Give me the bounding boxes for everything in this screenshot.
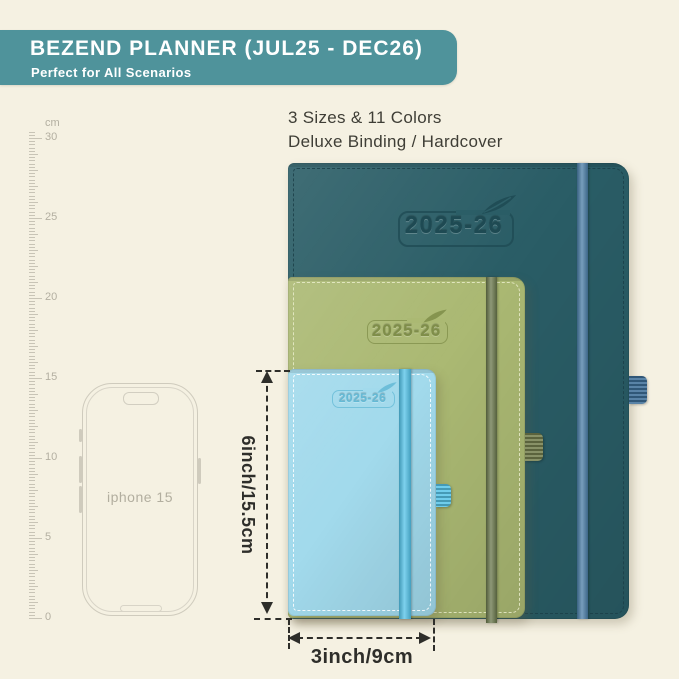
height-dimension-line: [266, 376, 268, 608]
dimension-extension: [433, 619, 435, 651]
dimension-annotations: 6inch/15.5cm 3inch/9cm: [0, 0, 679, 679]
arrow-down-icon: [261, 602, 273, 614]
product-infographic: BEZEND PLANNER (JUL25 - DEC26) Perfect f…: [0, 0, 679, 679]
width-dimension-line: [297, 637, 422, 639]
height-dimension-label: 6inch/15.5cm: [236, 405, 258, 585]
arrow-left-icon: [288, 632, 300, 644]
arrow-right-icon: [419, 632, 431, 644]
dimension-tick: [254, 618, 292, 620]
arrow-up-icon: [261, 371, 273, 383]
width-dimension-label: 3inch/9cm: [292, 646, 432, 669]
